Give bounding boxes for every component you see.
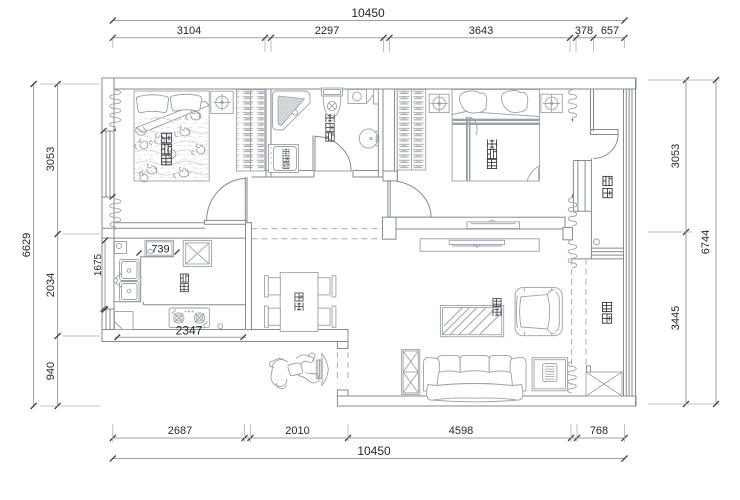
- svg-text:378: 378: [575, 25, 593, 37]
- svg-text:6629: 6629: [21, 233, 33, 257]
- svg-text:10450: 10450: [357, 444, 391, 458]
- svg-text:10450: 10450: [351, 6, 385, 20]
- svg-text:2010: 2010: [285, 425, 309, 437]
- svg-text:1675: 1675: [93, 253, 104, 276]
- svg-text:3643: 3643: [469, 25, 493, 37]
- svg-text:2297: 2297: [315, 25, 339, 37]
- svg-text:4598: 4598: [449, 425, 473, 437]
- svg-text:739: 739: [151, 244, 169, 256]
- svg-text:657: 657: [601, 25, 619, 37]
- svg-text:3053: 3053: [45, 147, 57, 171]
- svg-text:2034: 2034: [45, 273, 57, 297]
- svg-text:3053: 3053: [670, 144, 682, 168]
- svg-text:6744: 6744: [700, 230, 712, 254]
- svg-text:3445: 3445: [670, 306, 682, 330]
- svg-text:2687: 2687: [168, 425, 192, 437]
- svg-text:3104: 3104: [177, 25, 201, 37]
- svg-text:768: 768: [590, 425, 608, 437]
- svg-text:940: 940: [45, 362, 57, 380]
- svg-text:2347: 2347: [176, 324, 203, 338]
